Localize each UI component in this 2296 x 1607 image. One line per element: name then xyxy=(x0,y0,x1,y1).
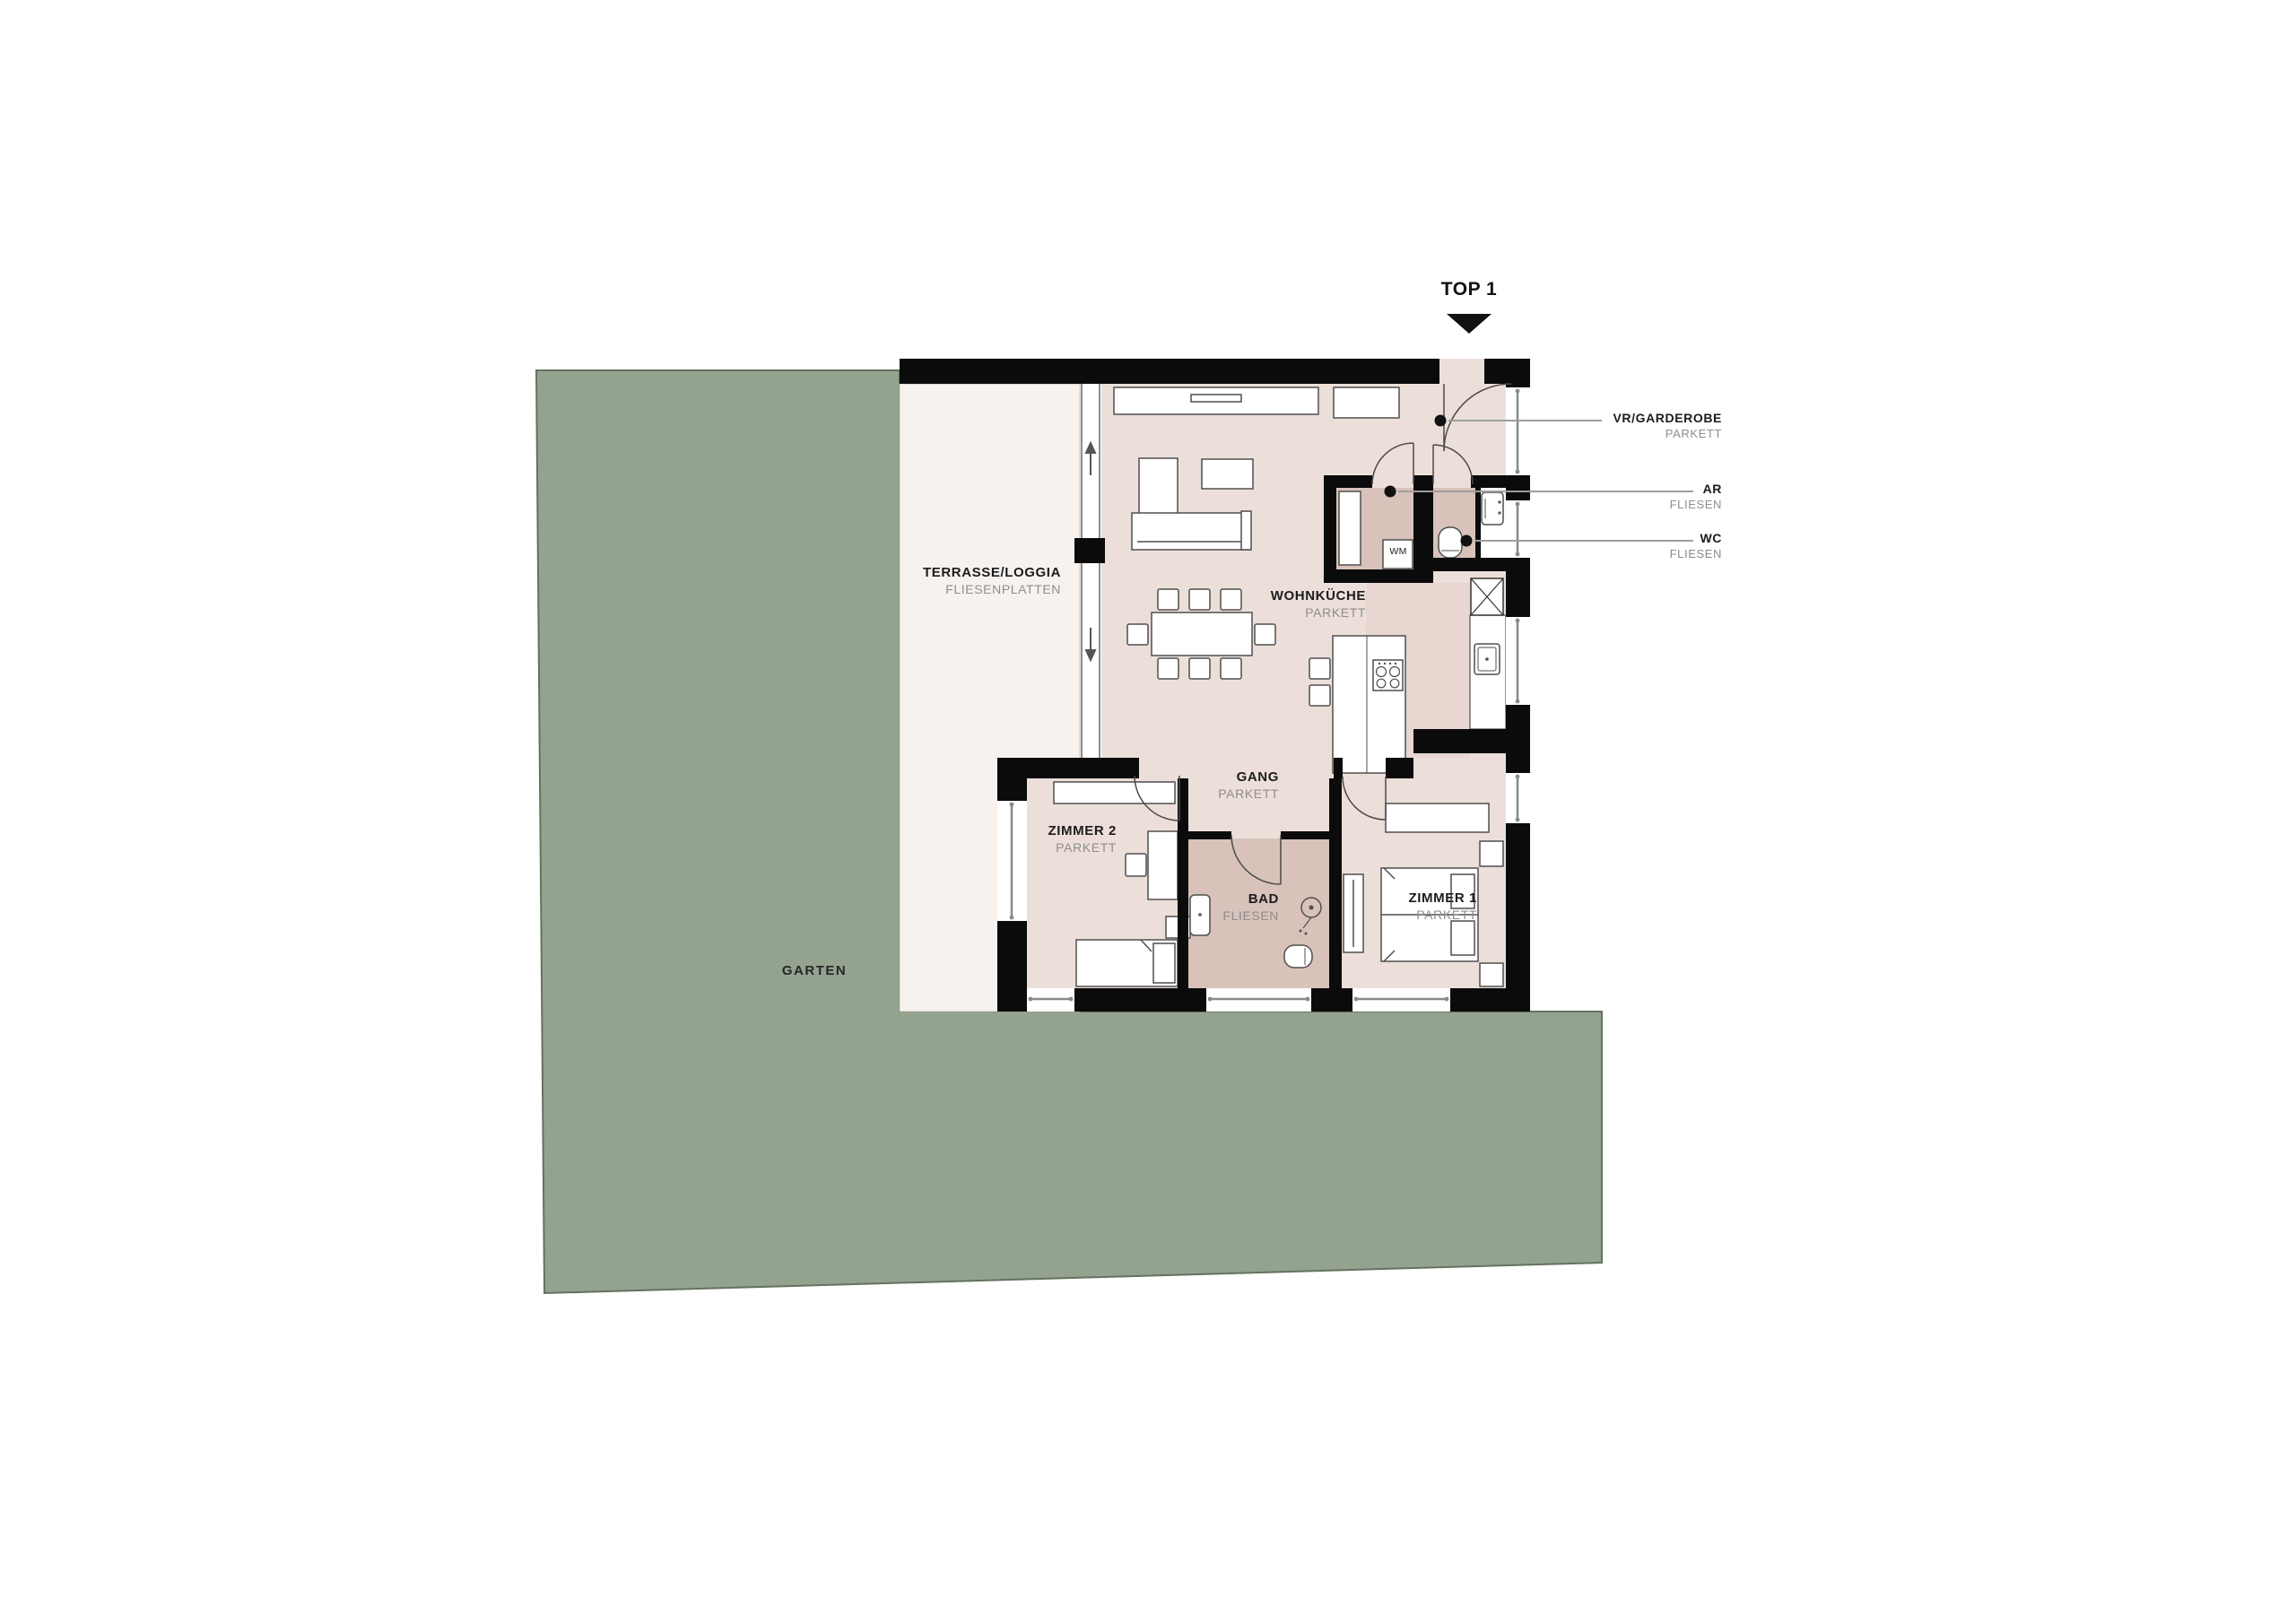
unit-title: TOP 1 xyxy=(1402,278,1536,301)
room-material: FLIESENPLATTEN xyxy=(923,582,1061,598)
callout-name: VR/GARDEROBE xyxy=(1613,411,1722,427)
kitchen-island xyxy=(1333,636,1405,773)
pillow-z1 xyxy=(1451,921,1474,955)
chair xyxy=(1255,624,1275,645)
coffee-table xyxy=(1202,459,1253,489)
entry-opening-floor xyxy=(1439,359,1484,384)
callout-name: AR xyxy=(1670,482,1722,498)
floorplan-page: TOP 1 GARTEN TERRASSE/LOGGIA FLIESENPLAT… xyxy=(0,0,2296,1607)
chair xyxy=(1127,624,1148,645)
dining-table xyxy=(1152,612,1252,656)
callout-name: WC xyxy=(1670,531,1722,547)
vr-dot xyxy=(1435,415,1447,427)
ar-dot xyxy=(1385,486,1396,498)
callout-material: PARKETT xyxy=(1613,427,1722,441)
wc-toilet xyxy=(1439,527,1462,558)
cabinet-top-right xyxy=(1334,387,1399,418)
wc-dot xyxy=(1461,535,1473,547)
chair xyxy=(1158,589,1178,610)
terrace-glass-wall xyxy=(1082,384,1100,758)
entry-arrow xyxy=(1447,314,1492,334)
kitchen-zone-a xyxy=(1366,583,1470,636)
chair xyxy=(1221,658,1241,679)
room-material: PARKETT xyxy=(1409,908,1477,924)
room-material: PARKETT xyxy=(1048,840,1117,856)
room-label-terrasse: TERRASSE/LOGGIA FLIESENPLATTEN xyxy=(923,565,1061,597)
room-label-zimmer2: ZIMMER 2 PARKETT xyxy=(1048,823,1117,856)
chair xyxy=(1189,589,1210,610)
room-name: GANG xyxy=(1218,769,1279,786)
dresser xyxy=(1386,803,1489,832)
sink-drain xyxy=(1485,657,1489,661)
desk xyxy=(1148,831,1178,899)
sofa-armrest xyxy=(1241,511,1251,550)
callout-vr-garderobe: VR/GARDEROBE PARKETT xyxy=(1613,411,1722,441)
room-label-gang: GANG PARKETT xyxy=(1218,769,1279,802)
room-name: ZIMMER 2 xyxy=(1048,823,1117,840)
desk-chair xyxy=(1126,854,1146,876)
callout-wc: WC FLIESEN xyxy=(1670,531,1722,561)
room-label-wohnkueche: WOHNKÜCHE PARKETT xyxy=(1271,588,1366,621)
chair xyxy=(1221,589,1241,610)
chair xyxy=(1158,658,1178,679)
callout-material: FLIESEN xyxy=(1670,547,1722,561)
room-label-bad: BAD FLIESEN xyxy=(1222,891,1279,924)
nightstand-z1 xyxy=(1480,963,1503,986)
room-name: TERRASSE/LOGGIA xyxy=(923,565,1061,582)
pillow-z2 xyxy=(1153,943,1175,983)
room-label-zimmer1: ZIMMER 1 PARKETT xyxy=(1409,890,1477,923)
garden-label: GARTEN xyxy=(743,963,886,980)
callout-ar: AR FLIESEN xyxy=(1670,482,1722,512)
room-material: PARKETT xyxy=(1218,786,1279,803)
ar-cupboard xyxy=(1339,491,1361,565)
bad-toilet xyxy=(1284,945,1312,968)
sofa-body xyxy=(1132,513,1250,550)
room-name: ZIMMER 1 xyxy=(1409,890,1477,908)
room-name: BAD xyxy=(1222,891,1279,908)
room-material: FLIESEN xyxy=(1222,908,1279,925)
washing-machine-label: WM xyxy=(1381,546,1415,558)
room-name: WOHNKÜCHE xyxy=(1271,588,1366,605)
sideboard xyxy=(1114,387,1318,414)
bar-stool xyxy=(1309,685,1330,706)
callout-material: FLIESEN xyxy=(1670,498,1722,512)
nightstand-z1 xyxy=(1480,841,1503,866)
bar-stool xyxy=(1309,658,1330,679)
room-material: PARKETT xyxy=(1271,605,1366,621)
wardrobe-z2 xyxy=(1054,782,1175,803)
chair xyxy=(1189,658,1210,679)
floorplan-drawing xyxy=(0,0,2296,1607)
shaft xyxy=(1471,578,1503,615)
